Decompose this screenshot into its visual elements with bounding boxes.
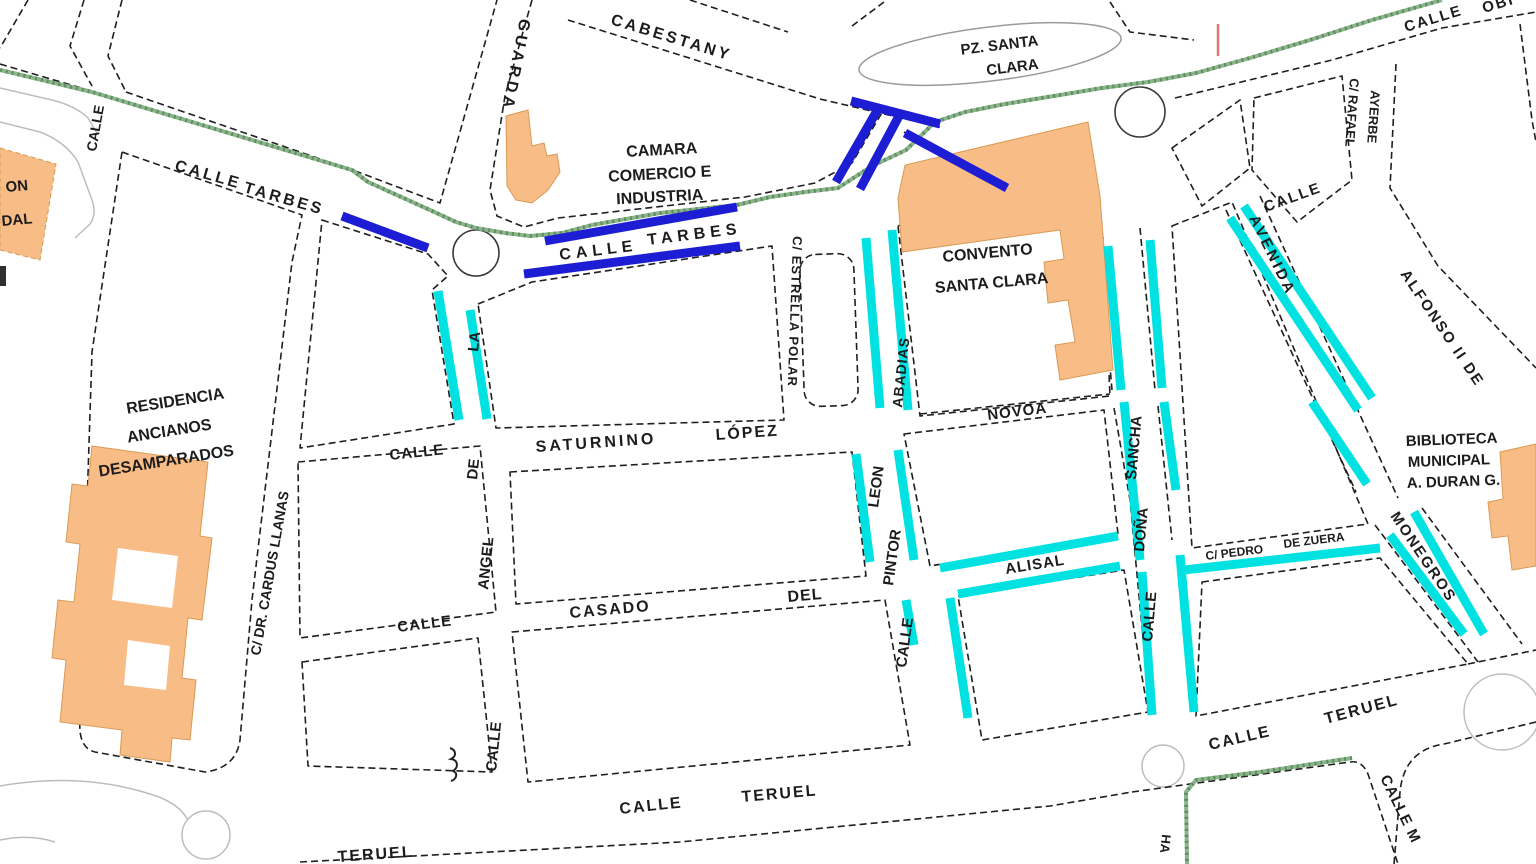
street-label-ha-partial: HA: [1157, 834, 1174, 855]
place-label-biblioteca-1: BIBLIOTECA: [1406, 430, 1498, 450]
street-label-casado-calle: CALLE: [396, 612, 453, 636]
place-label-residencia-2: ANCIANOS: [126, 416, 213, 446]
street-label-obispo-name: OBI: [1480, 0, 1516, 17]
map-canvas[interactable]: CABESTANY PZ. SANTA CLARA CALLE CALLE TA…: [0, 0, 1536, 864]
street-label-teruel-c-name: TERUEL: [741, 782, 818, 806]
place-label-convento-2: SANTA CLARA: [934, 270, 1049, 297]
street-map[interactable]: CABESTANY PZ. SANTA CLARA CALLE CALLE TA…: [0, 0, 1536, 864]
street-label-novoa: NOVOA: [986, 400, 1048, 424]
street-label-leon: LEON: [865, 465, 888, 509]
street-label-rafael-ayerbe-1: C/ RAFAEL: [1342, 78, 1362, 148]
building-biblioteca: [1488, 444, 1536, 570]
street-label-teruel-sw: TERUEL: [337, 844, 414, 864]
place-label-camara-1: CAMARA: [626, 140, 698, 161]
building-residencia: [52, 446, 212, 762]
street-label-cardus: C/ DR. CARDUS LLANAS: [247, 490, 292, 657]
street-label-teruel-e-calle: CALLE: [1207, 723, 1273, 754]
roundabout-se-large: [1464, 674, 1536, 750]
street-label-rafael-ayerbe-2: AYERBE: [1364, 90, 1383, 144]
street-label-calle-m: CALLE M: [1376, 772, 1424, 846]
place-label-biblioteca-2: MUNICIPAL: [1408, 451, 1491, 471]
roundabout-santa-clara: [1115, 87, 1165, 137]
labels-layer: CABESTANY PZ. SANTA CLARA CALLE CALLE TA…: [1, 0, 1517, 864]
street-label-pedro-2: DE ZUERA: [1283, 530, 1346, 551]
street-label-la: LA: [465, 331, 484, 353]
street-label-del: DEL: [787, 586, 823, 606]
street-label-tarbes-w-name: TARBES: [242, 180, 326, 219]
place-label-camara-3: INDUSTRIA: [616, 187, 704, 209]
roundabout-tarbes: [453, 230, 499, 276]
place-label-partial-left-1: ON: [5, 177, 29, 196]
street-label-pintor: PINTOR: [880, 528, 905, 586]
street-label-angel-calle: CALLE: [483, 721, 505, 773]
street-label-guarda: GUARDA: [498, 17, 533, 113]
minor-roads-layer: [0, 88, 1536, 859]
place-label-biblioteca-3: A. DURAN G.: [1407, 472, 1501, 492]
estrella-polar-building: [799, 253, 858, 407]
roundabout-se-small: [1142, 745, 1184, 787]
street-label-alfonso: ALFONSO II DE: [1397, 267, 1488, 390]
edge-fragment: [0, 266, 6, 286]
street-label-casado: CASADO: [569, 598, 652, 622]
street-label-estrella-polar: C/ ESTRELLA POLAR: [785, 236, 805, 387]
building-partial-left: [0, 148, 56, 260]
street-label-calle-ne: CALLE: [1262, 179, 1324, 215]
map-squiggle: [450, 748, 457, 781]
roundabout-sw: [182, 811, 230, 859]
street-label-tarbes-w-calle: CALLE: [173, 158, 243, 193]
street-label-saturnino: SATURNINO: [535, 431, 657, 456]
street-label-cabestany: CABESTANY: [609, 12, 734, 65]
street-label-calle-top-left: CALLE: [83, 104, 107, 153]
place-label-residencia-1: RESIDENCIA: [125, 385, 226, 417]
place-label-camara-2: COMERCIO E: [608, 163, 712, 185]
street-label-teruel-c-calle: CALLE: [619, 794, 684, 818]
street-label-saturnino-calle: CALLE: [389, 441, 445, 464]
building-camara: [506, 110, 560, 203]
street-label-lopez: LÓPEZ: [715, 421, 780, 444]
street-label-de: DE: [464, 458, 483, 481]
street-label-pintor-calle: CALLE: [893, 617, 917, 669]
street-label-angel: ANGEL: [475, 536, 497, 590]
place-label-partial-left-2: DAL: [1, 210, 33, 230]
street-label-teruel-e-name: TERUEL: [1323, 692, 1401, 728]
street-label-dona-calle: CALLE: [1139, 591, 1160, 642]
